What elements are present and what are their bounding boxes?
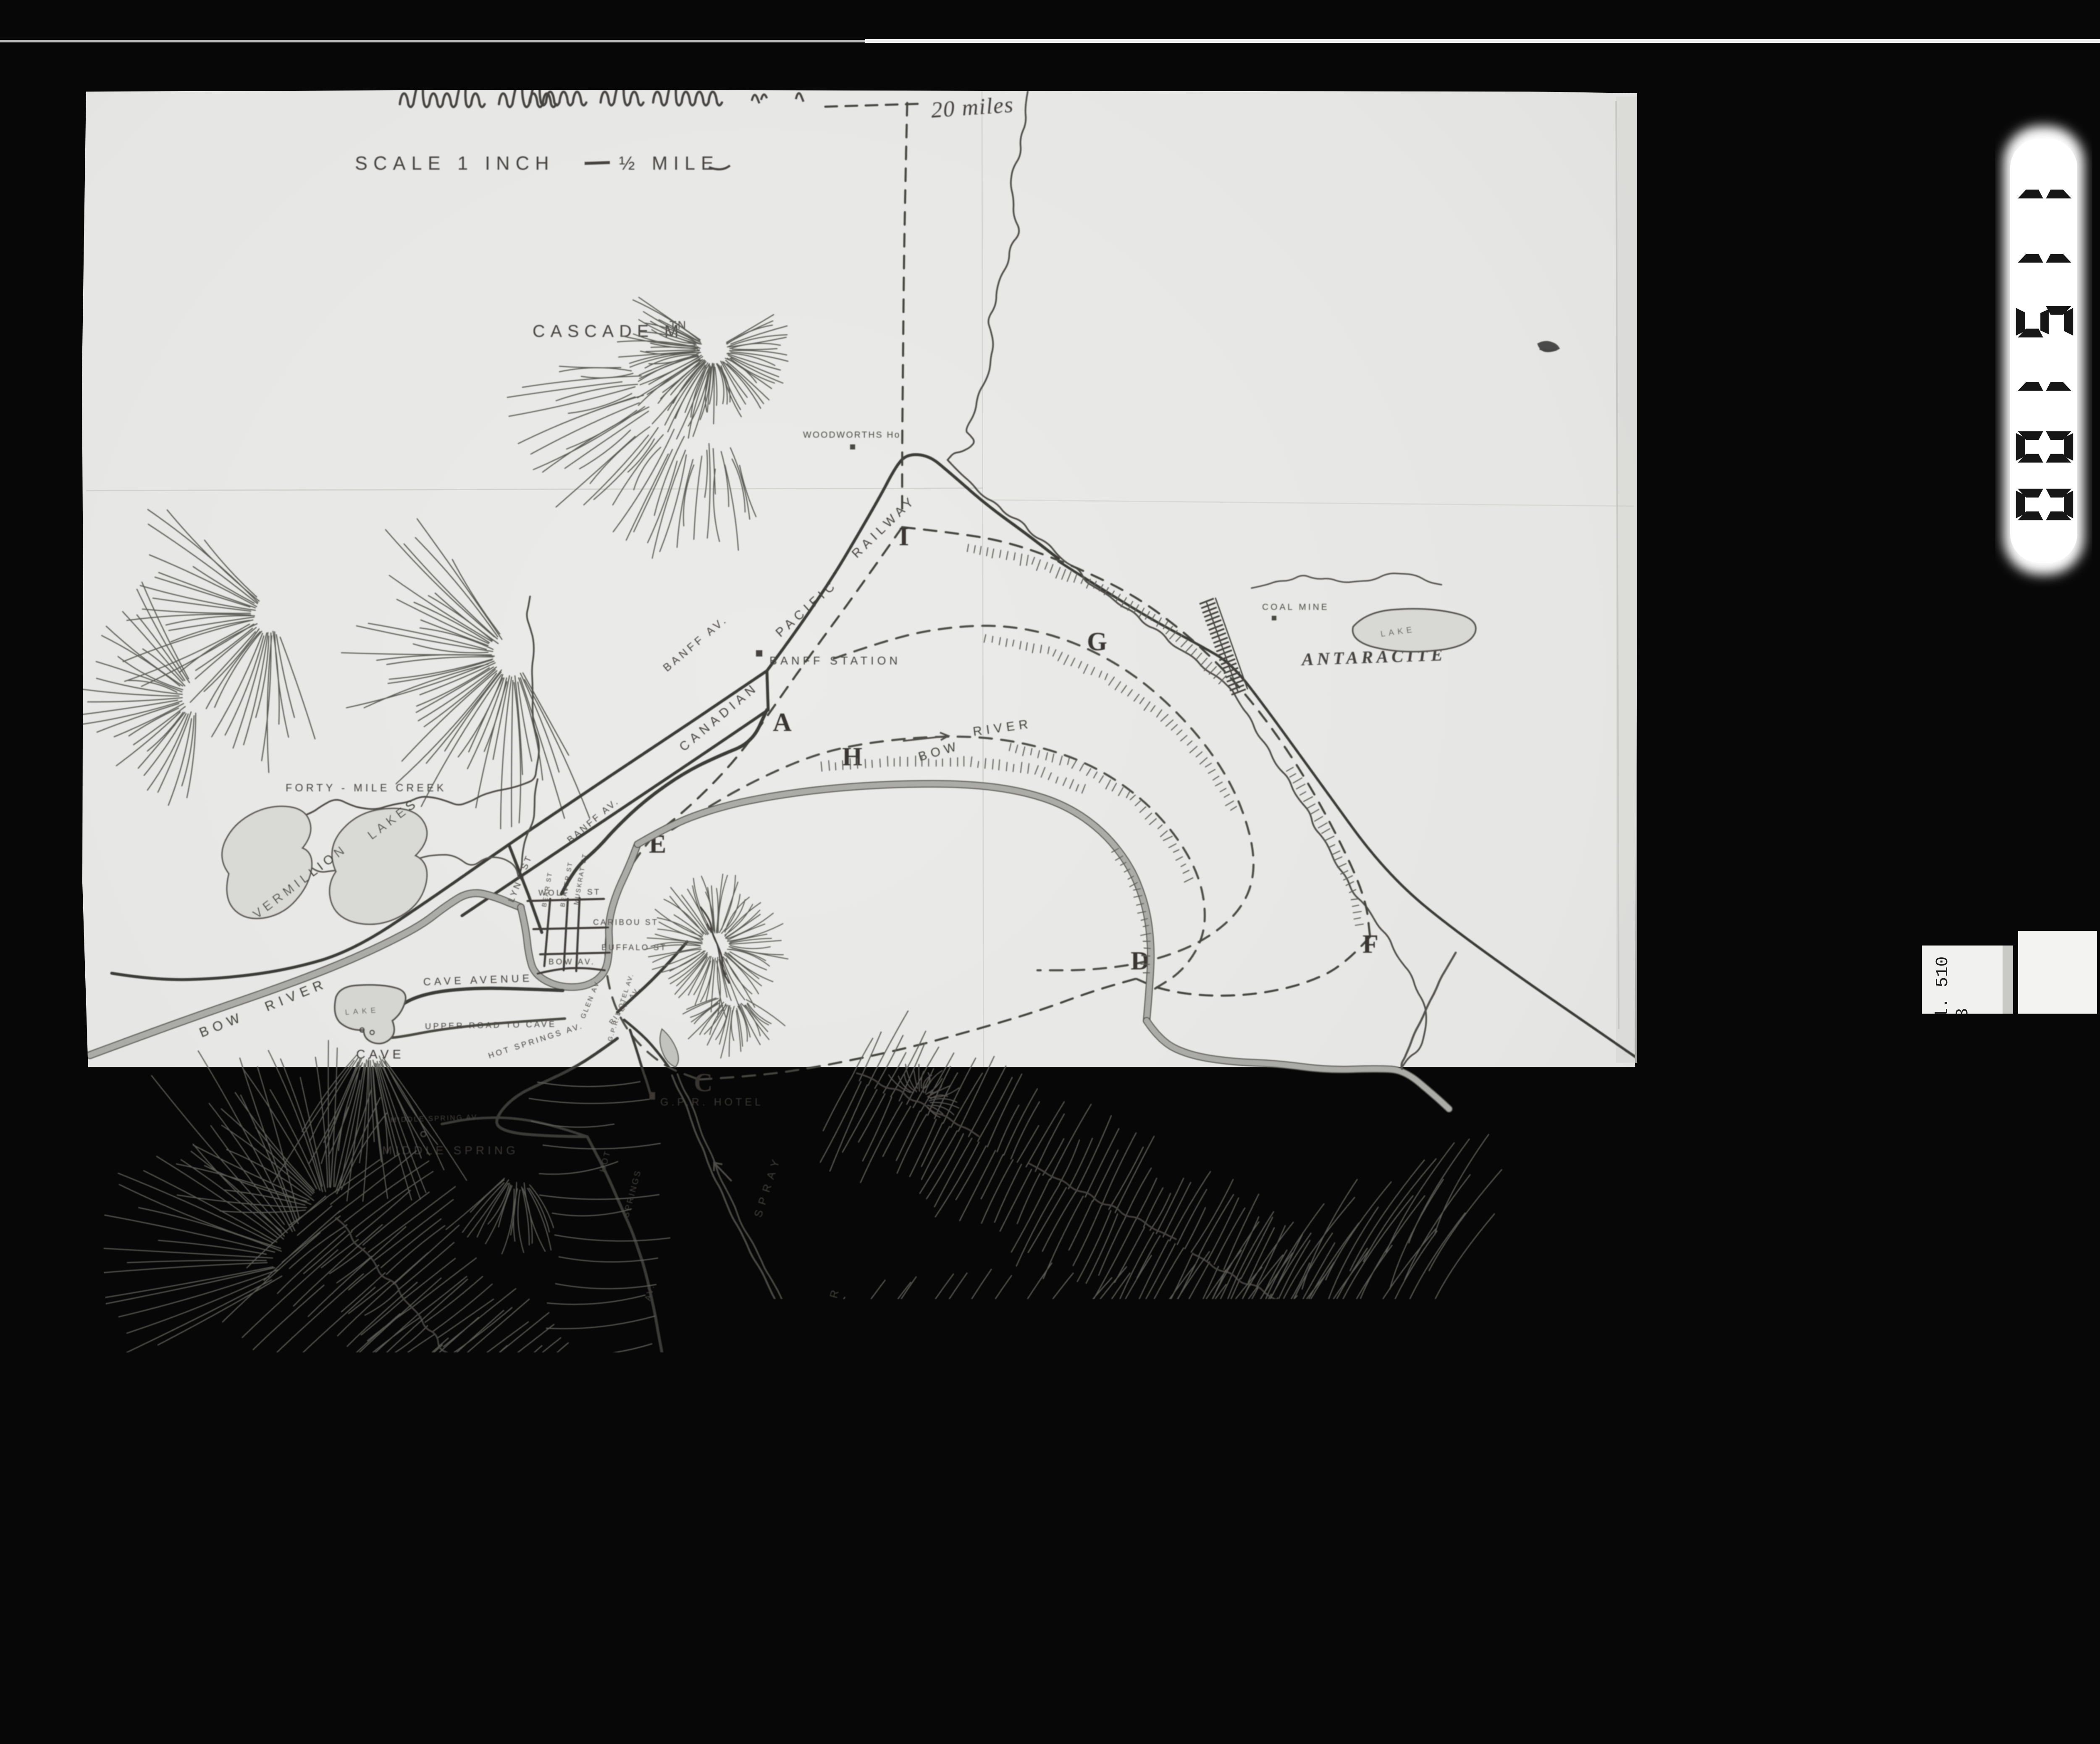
svg-text:A: A [773, 708, 792, 737]
svg-text:File/dossier B143: File/dossier B143 [1953, 1008, 1973, 1184]
svg-text:CARIBOU ST: CARIBOU ST [593, 918, 659, 927]
svg-text:2: 2 [1875, 1488, 1896, 1535]
svg-text:C: C [694, 1069, 713, 1097]
svg-text:CASCADE M: CASCADE M [533, 321, 684, 341]
svg-text:Parcs Canada: Parcs Canada [1962, 1460, 1981, 1584]
svg-text:BANFF STATION: BANFF STATION [769, 654, 901, 667]
svg-text:Parks Canada: Parks Canada [1940, 1460, 1959, 1584]
svg-text:OF/DE: OF/DE [1730, 1491, 1850, 1536]
svg-text:COAL MINE: COAL MINE [1262, 602, 1329, 612]
svg-text:ST: ST [587, 888, 601, 897]
svg-text:2: 2 [1680, 1492, 1701, 1538]
svg-text:BOW AV.: BOW AV. [549, 958, 596, 967]
svg-text:RG 84, A-2-a, vol. 510: RG 84, A-2-a, vol. 510 [1933, 956, 1953, 1184]
svg-text:I: I [899, 523, 909, 551]
svg-text:Archives nationales du Canada: Archives nationales du Canada [2059, 1143, 2081, 1430]
svg-text:National Archives of Canada: National Archives of Canada [2034, 1155, 2056, 1416]
svg-text:½ MILE: ½ MILE [619, 152, 719, 174]
svg-text:SCALE 1 INCH: SCALE 1 INCH [355, 152, 555, 174]
svg-text:H: H [842, 743, 862, 771]
svg-text:FORTY - MILE CREEK: FORTY - MILE CREEK [286, 782, 446, 794]
svg-text:F: F [1362, 930, 1378, 959]
svg-text:G.P.R. HOTEL: G.P.R. HOTEL [660, 1096, 764, 1108]
svg-text:pt 2: pt 2 [1974, 1143, 1993, 1184]
svg-text:WOODWORTHS Ho.: WOODWORTHS Ho. [803, 430, 904, 440]
svg-text:G: G [1087, 628, 1107, 656]
